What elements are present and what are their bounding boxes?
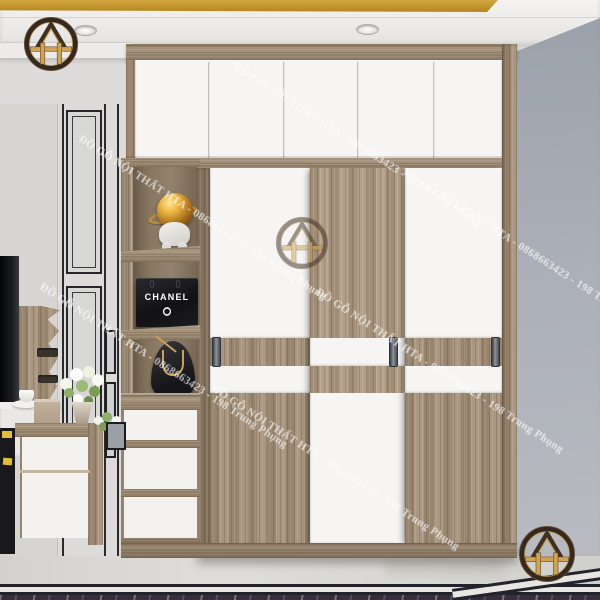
door-panel-white [210,366,310,393]
flower [92,374,104,386]
wainscot-panel-small [105,330,116,374]
ceiling-molding-line [0,17,600,18]
tv-cabinet [0,428,15,554]
flower [89,386,100,397]
wall-trim-line [117,104,119,564]
vanity-shelf-slot [38,375,58,383]
shelf-unit-top-trim [121,158,200,167]
yellow-book [3,458,13,466]
door-panel-white [405,168,502,338]
flower [102,412,112,422]
door-handle [389,337,398,367]
door-panel-white [405,366,502,393]
chanel-logo-text: CHANEL [136,292,198,302]
drawer-divider [121,440,200,448]
yellow-book [2,431,12,438]
door-panel-wood [210,338,310,366]
shelf-unit-counter [121,393,200,410]
hta-logo-top-left [23,16,79,72]
wardrobe-right-frame [502,44,517,558]
vanity-shelf-slot [37,348,58,357]
cabinet-door-seam [208,62,210,158]
door-handle [212,337,221,367]
cabinet-door-seam [283,62,285,158]
upper-cabinet-left-frame [126,60,135,160]
cabinet-door-seam [357,62,359,158]
shelf-unit-drawers [121,410,200,540]
drawer-divider [121,489,200,497]
hta-logo-bottom-right [518,525,576,583]
vanity-cabinet-drawers [20,437,90,538]
flower [76,380,88,392]
drawer-divider [20,470,90,473]
door-panel-wood [405,338,502,366]
wainscot-panel [66,110,102,274]
door-panel-wood [310,366,405,393]
wardrobe-base [197,543,517,558]
cabinet-door-seam [433,62,435,158]
gold-necklace [162,350,184,376]
picture-frame [106,422,126,450]
upper-cabinet [126,60,502,160]
upper-cabinet-top-trim [126,44,517,60]
interior-render: CHANEL [0,0,600,600]
door-panel-white [310,393,405,545]
sliding-door-right [405,168,502,545]
hta-logo-watermark-center [275,216,329,270]
floor-reflection [385,559,503,576]
bag-handle [176,280,180,288]
shelf-unit-base [121,538,200,558]
door-panel-wood [210,393,310,545]
bag-handle [150,280,154,288]
door-handle [491,337,500,367]
chanel-shopping-bag: CHANEL [136,278,198,327]
door-panel-wood [405,393,502,545]
recessed-ceiling-light [356,24,379,35]
upper-cabinet-doors [135,60,502,160]
